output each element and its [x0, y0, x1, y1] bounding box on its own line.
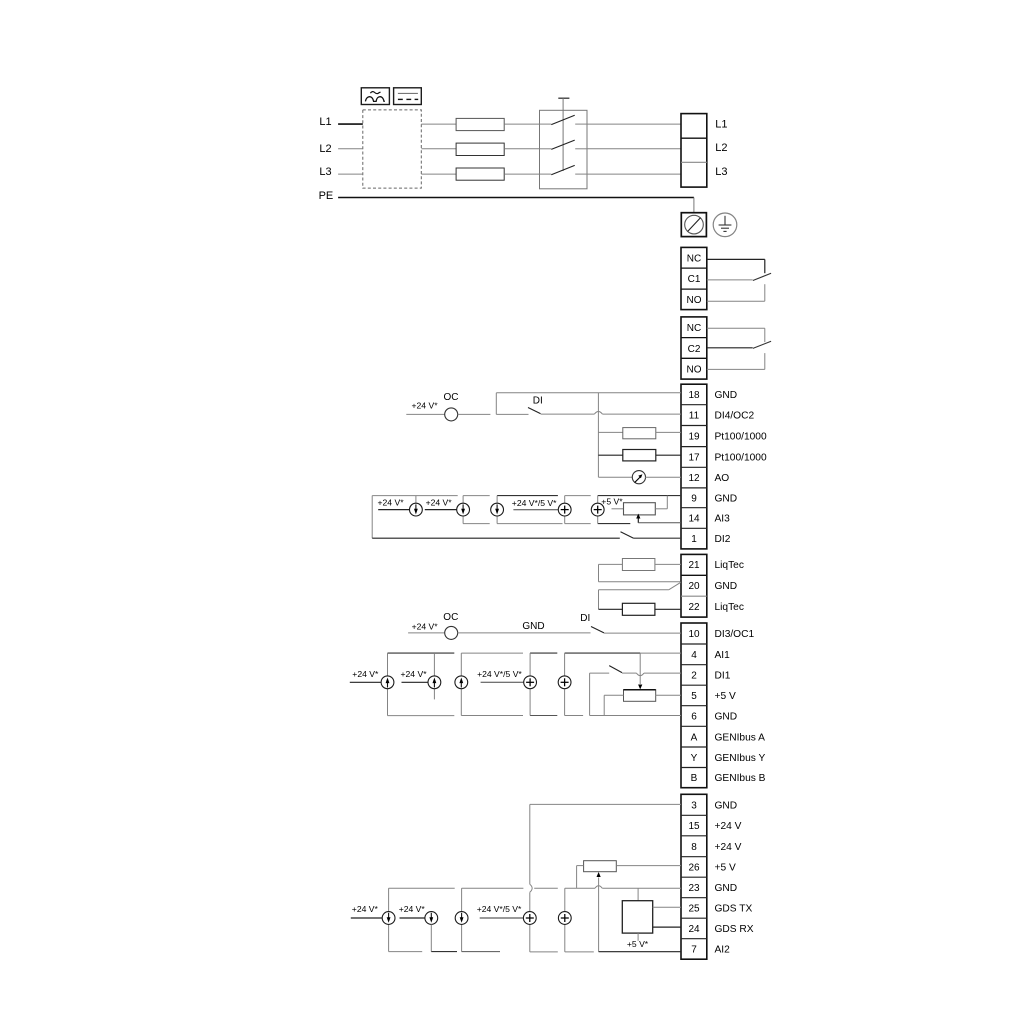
- svg-text:6: 6: [691, 712, 697, 723]
- svg-text:DI3/OC1: DI3/OC1: [715, 629, 755, 640]
- svg-text:GND: GND: [715, 800, 738, 811]
- svg-text:L3: L3: [715, 166, 727, 178]
- svg-text:23: 23: [688, 883, 700, 894]
- svg-text:+24 V*/5 V*: +24 V*/5 V*: [512, 498, 557, 508]
- svg-text:NC: NC: [687, 253, 701, 264]
- svg-text:7: 7: [691, 945, 697, 956]
- svg-text:GND: GND: [715, 883, 738, 894]
- svg-text:DI1: DI1: [715, 671, 731, 682]
- svg-text:L1: L1: [319, 116, 331, 128]
- svg-text:AO: AO: [715, 473, 730, 484]
- svg-text:+24 V*: +24 V*: [401, 669, 428, 679]
- svg-text:2: 2: [691, 671, 697, 682]
- svg-text:DI2: DI2: [715, 534, 731, 545]
- svg-text:+5 V*: +5 V*: [601, 497, 623, 507]
- svg-text:DI: DI: [533, 396, 543, 407]
- svg-text:1: 1: [691, 534, 697, 545]
- svg-text:LiqTec: LiqTec: [715, 560, 744, 571]
- svg-text:24: 24: [688, 924, 700, 935]
- svg-text:AI2: AI2: [715, 945, 731, 956]
- svg-text:OC: OC: [443, 612, 458, 623]
- svg-text:+24 V*: +24 V*: [352, 669, 379, 679]
- svg-text:9: 9: [691, 493, 697, 504]
- svg-text:GND: GND: [715, 493, 738, 504]
- svg-text:+5 V: +5 V: [715, 691, 736, 702]
- svg-text:+24 V: +24 V: [715, 821, 742, 832]
- svg-text:NC: NC: [687, 323, 701, 334]
- svg-text:AI1: AI1: [715, 650, 731, 661]
- svg-text:22: 22: [688, 602, 700, 613]
- svg-text:19: 19: [688, 432, 700, 443]
- svg-text:L2: L2: [715, 142, 727, 154]
- svg-text:DI: DI: [580, 613, 590, 624]
- svg-text:+24 V*: +24 V*: [378, 498, 405, 508]
- svg-text:12: 12: [688, 473, 700, 484]
- svg-text:18: 18: [688, 390, 700, 401]
- svg-text:+24 V: +24 V: [715, 842, 742, 853]
- svg-text:C1: C1: [688, 274, 701, 285]
- svg-text:A: A: [691, 732, 698, 743]
- svg-text:Y: Y: [691, 753, 698, 764]
- svg-text:B: B: [691, 773, 698, 784]
- svg-text:25: 25: [688, 904, 700, 915]
- svg-text:+24 V*: +24 V*: [426, 498, 453, 508]
- svg-text:NO: NO: [687, 365, 702, 376]
- svg-text:15: 15: [688, 821, 700, 832]
- svg-text:Pt100/1000: Pt100/1000: [715, 432, 767, 443]
- svg-text:GDS RX: GDS RX: [715, 924, 754, 935]
- svg-text:GENIbus Y: GENIbus Y: [715, 753, 766, 764]
- svg-text:GND: GND: [715, 390, 738, 401]
- svg-text:10: 10: [688, 629, 700, 640]
- svg-text:+24 V*: +24 V*: [412, 401, 439, 411]
- svg-text:AI3: AI3: [715, 514, 731, 525]
- svg-text:OC: OC: [444, 392, 459, 403]
- svg-text:17: 17: [688, 453, 700, 464]
- svg-text:GENIbus A: GENIbus A: [715, 732, 766, 743]
- svg-text:L2: L2: [319, 143, 331, 155]
- svg-text:L3: L3: [319, 166, 331, 178]
- svg-text:21: 21: [688, 560, 700, 571]
- svg-text:+24 V*/5 V*: +24 V*/5 V*: [477, 904, 522, 914]
- svg-text:GND: GND: [715, 712, 738, 723]
- svg-text:+24 V*: +24 V*: [352, 904, 379, 914]
- svg-text:NO: NO: [687, 295, 702, 306]
- svg-text:+24 V*: +24 V*: [399, 904, 426, 914]
- svg-text:+24 V*/5 V*: +24 V*/5 V*: [477, 669, 522, 679]
- svg-text:5: 5: [691, 691, 697, 702]
- svg-text:GENIbus B: GENIbus B: [715, 773, 766, 784]
- svg-text:+5 V: +5 V: [715, 863, 736, 874]
- svg-text:GND: GND: [522, 621, 544, 632]
- svg-text:DI4/OC2: DI4/OC2: [715, 411, 755, 422]
- svg-text:3: 3: [691, 800, 697, 811]
- svg-text:L1: L1: [715, 118, 727, 130]
- svg-text:8: 8: [691, 842, 697, 853]
- svg-text:GDS TX: GDS TX: [715, 904, 753, 915]
- svg-text:26: 26: [688, 863, 700, 874]
- svg-text:20: 20: [688, 581, 700, 592]
- svg-text:Pt100/1000: Pt100/1000: [715, 453, 767, 464]
- svg-text:LiqTec: LiqTec: [715, 602, 744, 613]
- svg-text:11: 11: [689, 411, 700, 422]
- svg-text:GND: GND: [715, 581, 738, 592]
- svg-text:C2: C2: [688, 344, 701, 355]
- svg-text:+24 V*: +24 V*: [412, 621, 439, 631]
- svg-text:14: 14: [688, 514, 700, 525]
- svg-text:+5 V*: +5 V*: [627, 939, 649, 949]
- svg-text:PE: PE: [319, 190, 334, 202]
- svg-text:4: 4: [691, 650, 697, 661]
